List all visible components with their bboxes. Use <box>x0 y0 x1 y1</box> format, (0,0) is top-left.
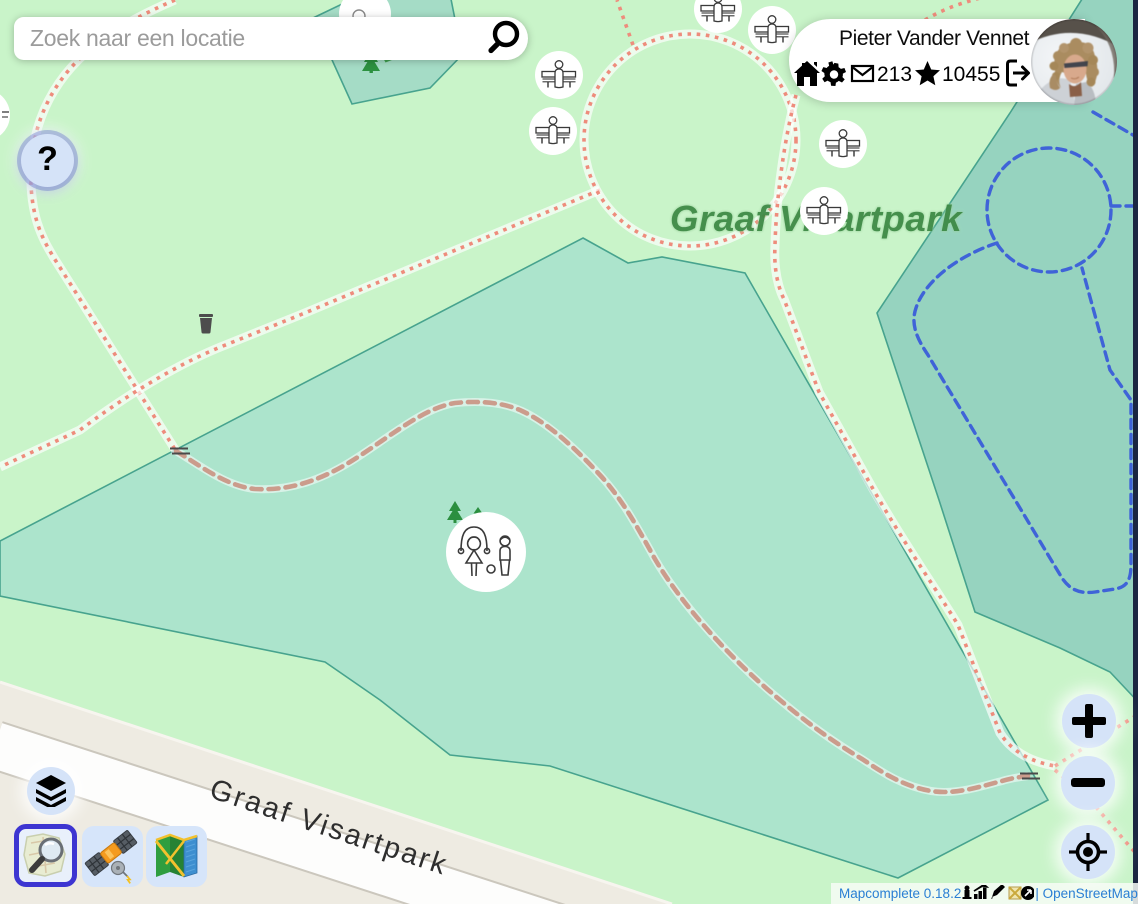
svg-text:10455: 10455 <box>942 63 1000 86</box>
svg-text:213: 213 <box>877 63 912 86</box>
